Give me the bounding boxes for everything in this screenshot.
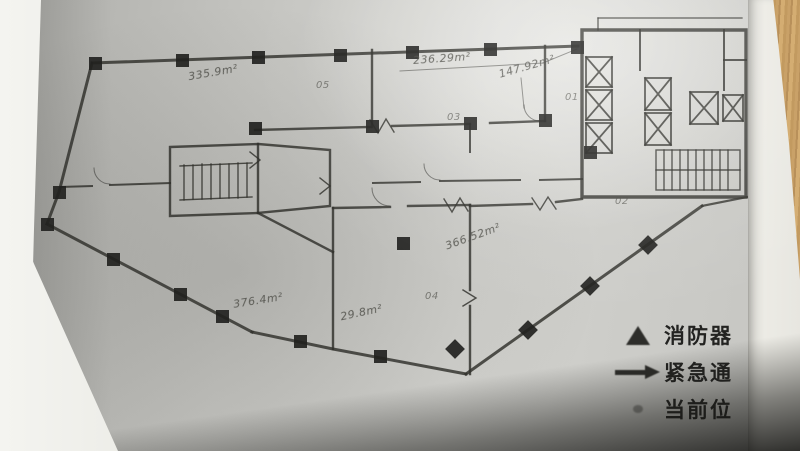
room-number-label: 02 — [615, 196, 629, 207]
room-number-label: 05 — [316, 80, 330, 91]
emergency-route-arrow-icon — [612, 365, 664, 379]
room-number-label: 01 — [565, 92, 579, 103]
legend-label: 当前位 — [664, 394, 733, 424]
legend-label: 消防器 — [664, 320, 733, 350]
legend-item-current-location: 当前位 — [612, 396, 748, 422]
floor-plan-photo: 335.9m² 05 236.29m² 147.92m² 01 03 02 36… — [0, 0, 800, 451]
elevator-shafts — [586, 57, 743, 153]
stair-hatch — [180, 150, 740, 200]
room-number-label: 03 — [447, 112, 461, 123]
current-location-icon — [612, 405, 664, 413]
interior-walls — [60, 46, 582, 374]
room-number-label: 04 — [425, 291, 439, 302]
legend-label: 紧急通 — [664, 357, 733, 387]
legend: 消防器 紧急通 当前位 — [612, 322, 748, 433]
legend-item-fire-extinguisher: 消防器 — [612, 322, 748, 348]
fire-extinguisher-triangle-icon — [612, 326, 664, 345]
legend-item-emergency-route: 紧急通 — [612, 359, 748, 385]
